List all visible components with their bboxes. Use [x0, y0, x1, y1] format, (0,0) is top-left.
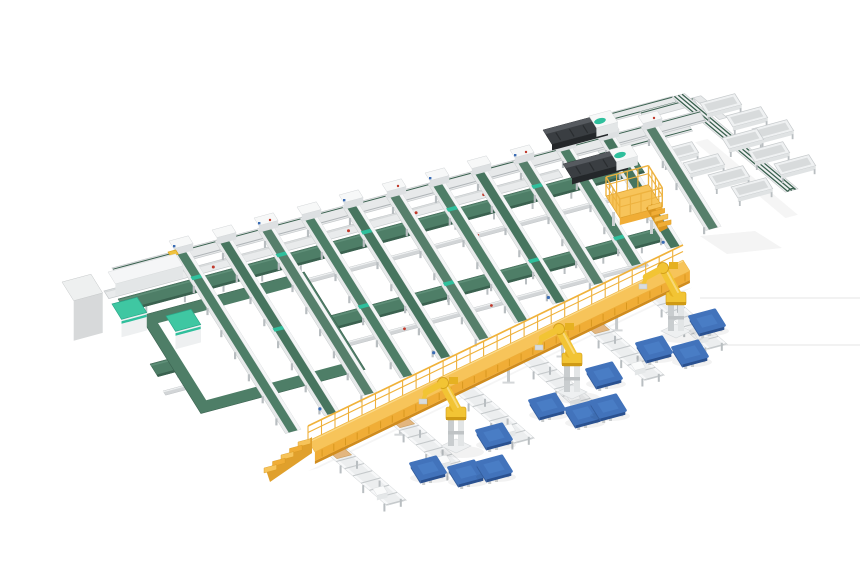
- left-station: [62, 254, 201, 349]
- electrical-cabinet: [62, 274, 103, 341]
- pallet: [689, 310, 729, 338]
- pallet: [586, 363, 626, 391]
- scene-canvas: [0, 0, 860, 580]
- pallet: [590, 395, 630, 423]
- pallet: [476, 456, 516, 484]
- factory-render: Isometric 3D render of an automated pane…: [0, 0, 860, 580]
- gantry-stairs: [264, 437, 312, 482]
